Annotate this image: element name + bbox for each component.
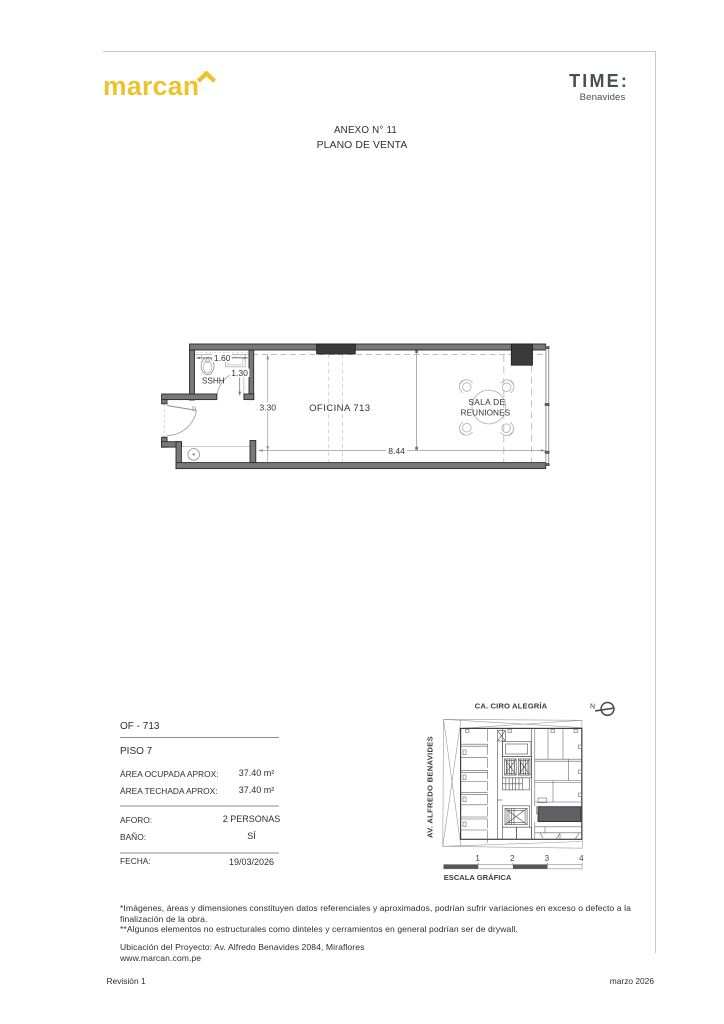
svg-text:AV. ALFREDO BENAVIDES: AV. ALFREDO BENAVIDES [426,736,435,838]
svg-text:2: 2 [510,854,515,863]
svg-text:N: N [590,703,595,710]
svg-text:1.30: 1.30 [231,368,248,378]
svg-text:SSHH: SSHH [202,376,225,385]
svg-text:ESCALA GRÁFICA: ESCALA GRÁFICA [444,873,512,882]
svg-text:4: 4 [579,854,584,863]
svg-text:REUNIONES: REUNIONES [461,408,511,417]
svg-text:SALA DE: SALA DE [468,397,505,407]
svg-text:OFICINA 713: OFICINA 713 [309,403,370,414]
svg-text:1: 1 [475,854,480,863]
svg-text:3: 3 [545,854,550,863]
svg-text:8.44: 8.44 [388,446,405,456]
svg-text:CA. CIRO ALEGRÍA: CA. CIRO ALEGRÍA [475,702,548,711]
svg-text:1.60: 1.60 [214,353,231,363]
svg-text:3.30: 3.30 [259,402,276,412]
